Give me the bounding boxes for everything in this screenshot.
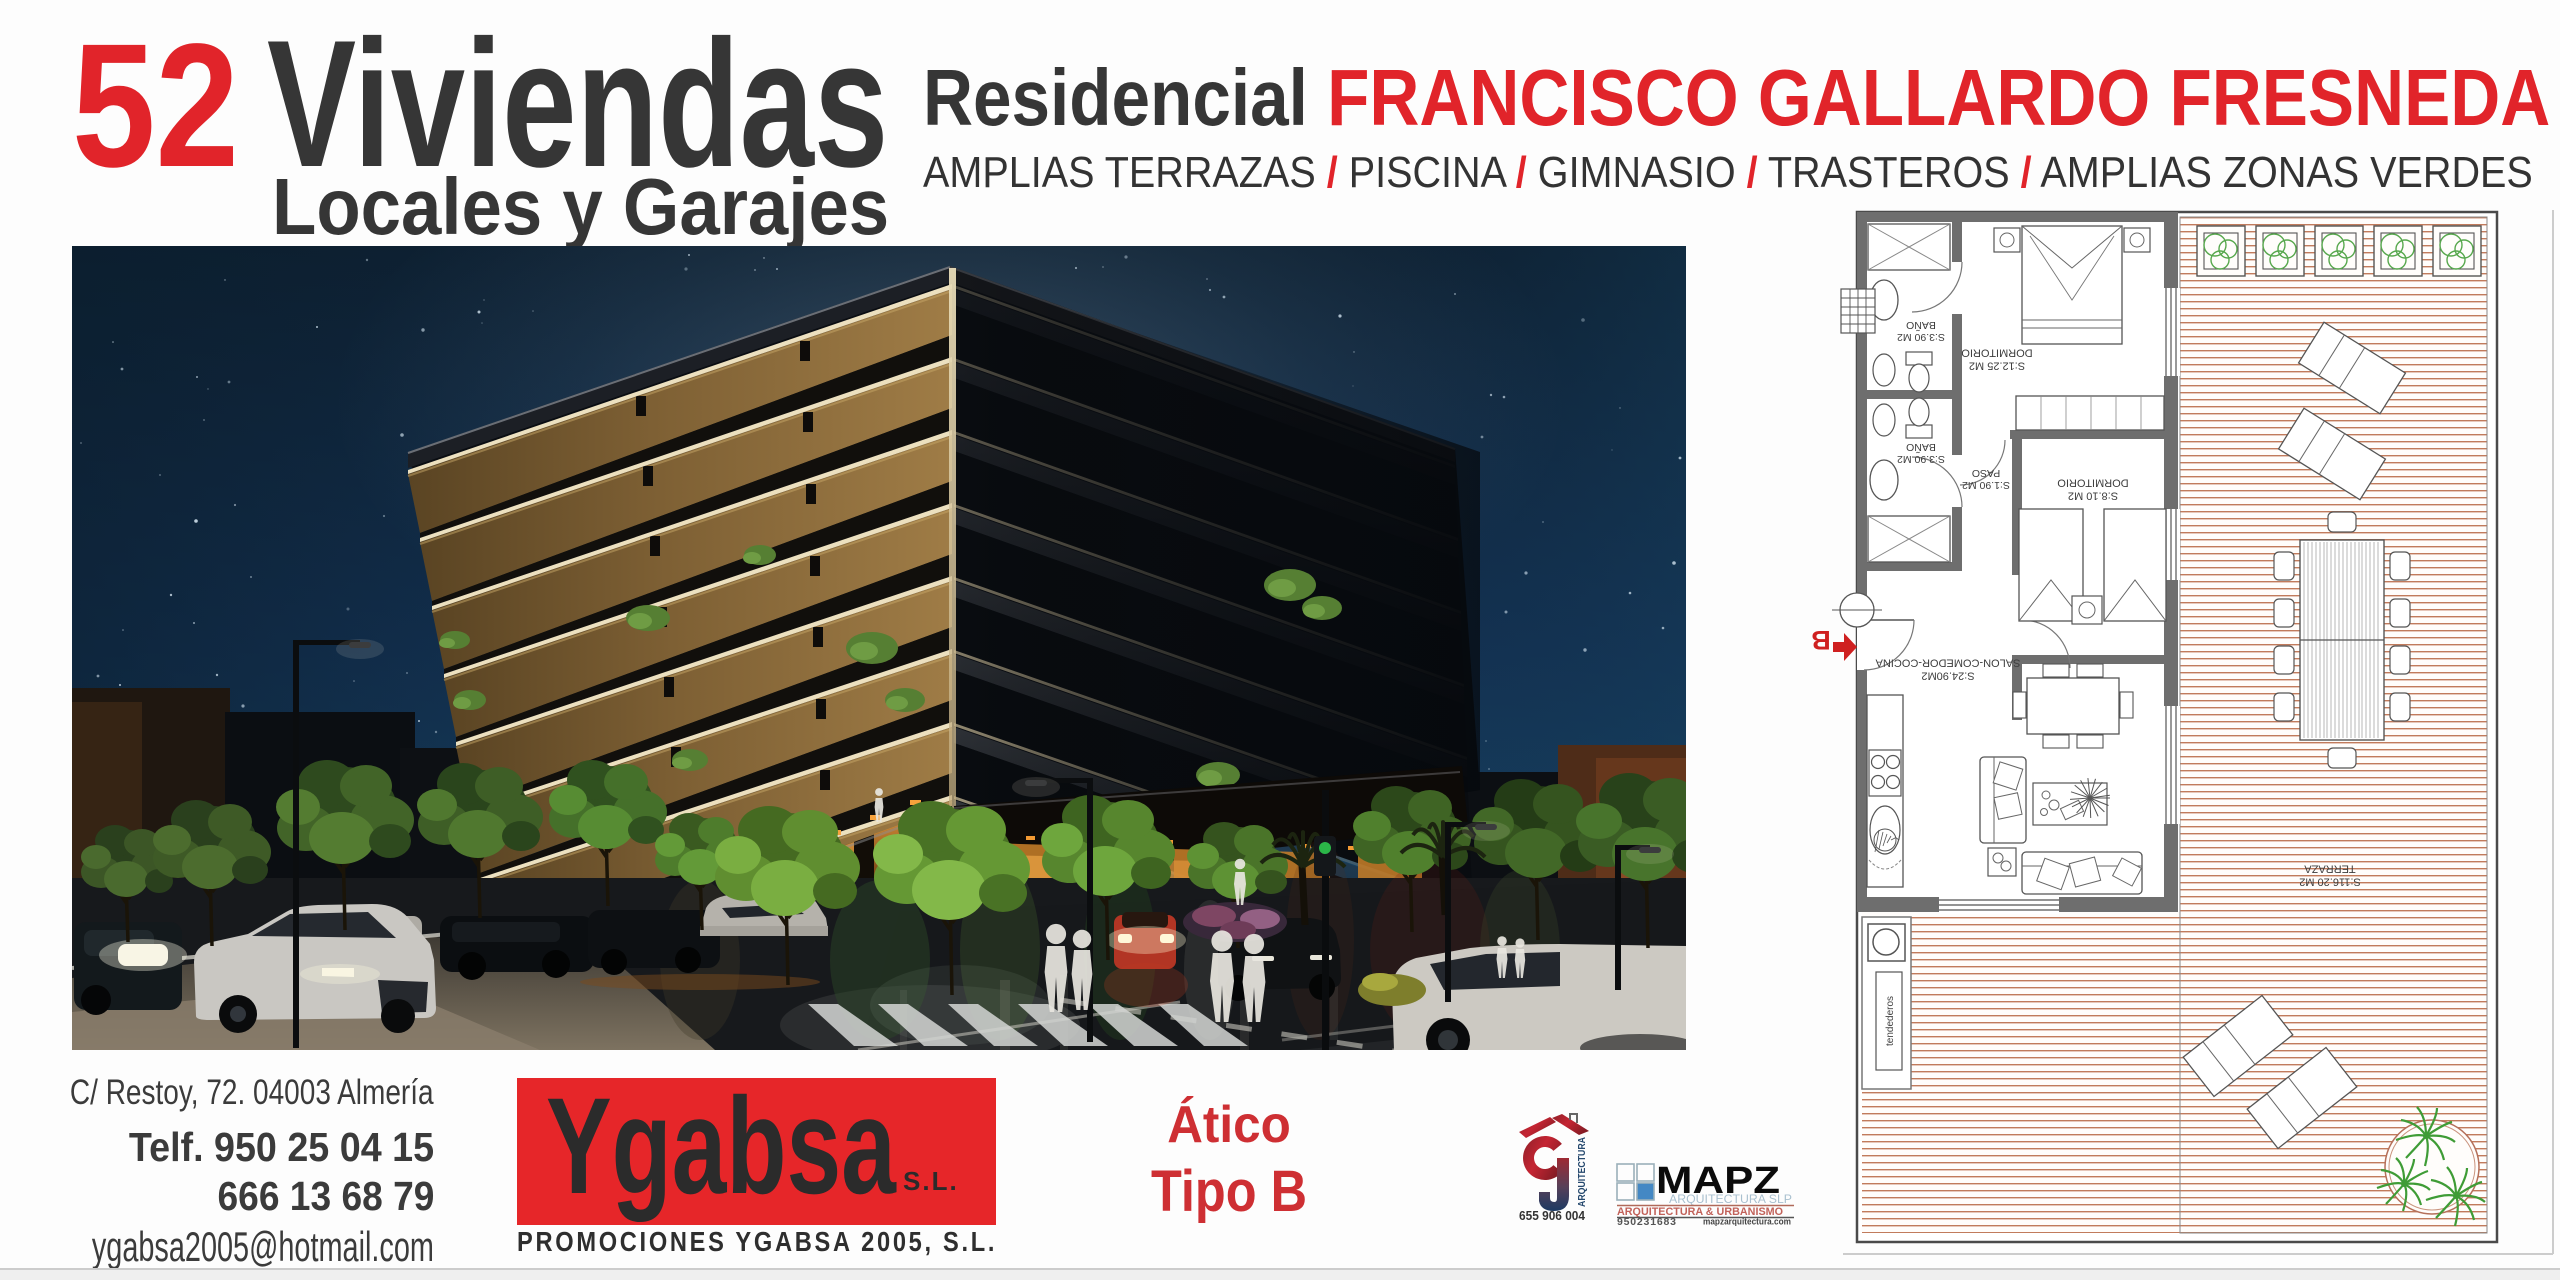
svg-text:TERRAZA: TERRAZA [2304,863,2356,875]
svg-text:tendederos: tendederos [1885,996,1896,1046]
svg-text:mapzarquitectura.com: mapzarquitectura.com [1703,1217,1791,1227]
svg-text:B: B [1811,625,1831,655]
svg-text:S:3.90 M2: S:3.90 M2 [1897,453,1945,465]
svg-text:PASO: PASO [1972,467,2000,479]
svg-text:S:24.90M2: S:24.90M2 [1921,669,1974,681]
svg-text:ARQUITECTURA SLP: ARQUITECTURA SLP [1669,1192,1792,1206]
svg-text:DORMITORIO: DORMITORIO [1961,347,2033,359]
svg-text:DORMITORIO: DORMITORIO [2057,477,2129,489]
svg-text:S:1.90 M2: S:1.90 M2 [1962,479,2010,491]
svg-text:BAÑO: BAÑO [1906,319,1936,332]
svg-text:BAÑO: BAÑO [1906,441,1936,454]
svg-text:950231683: 950231683 [1617,1216,1677,1226]
svg-text:S:3.90 M2: S:3.90 M2 [1897,331,1945,343]
svg-text:S:12.25 M2: S:12.25 M2 [1969,359,2025,371]
svg-text:ARQUITECTURA: ARQUITECTURA [1576,1137,1588,1207]
svg-text:S:8.10 M2: S:8.10 M2 [2068,489,2118,501]
svg-text:S:116.20 M2: S:116.20 M2 [2299,875,2361,887]
svg-text:655 906 004: 655 906 004 [1519,1208,1586,1223]
svg-text:SALON-COMEDOR-COCINA: SALON-COMEDOR-COCINA [1875,657,2021,669]
